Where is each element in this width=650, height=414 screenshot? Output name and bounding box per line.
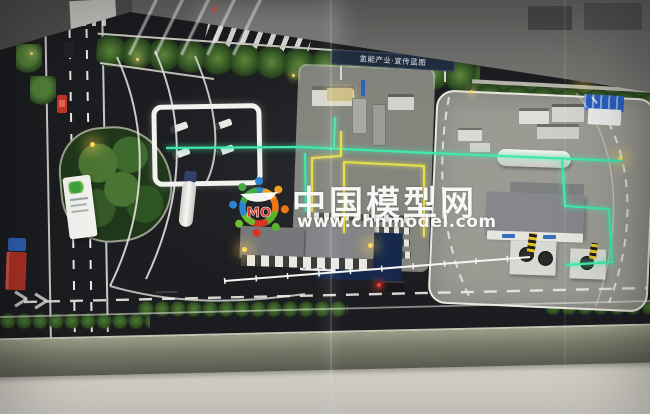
dark-car: [64, 42, 74, 58]
equipment-tower: [372, 104, 386, 146]
totem-text-line: [70, 197, 88, 201]
totem-text-line: [71, 209, 88, 213]
truck-cab: [8, 238, 26, 252]
blue-pipe-column: [361, 80, 365, 96]
banner-post: [444, 70, 446, 82]
hedge-row: [0, 312, 150, 336]
totem-text-line: [71, 203, 87, 207]
road-edge-line: [44, 8, 52, 338]
tree: [16, 44, 42, 74]
street-lamp: [242, 247, 247, 252]
equipment-cabinet: [470, 143, 490, 152]
totem-logo-icon: [68, 180, 87, 194]
street-lamp: [618, 156, 623, 161]
truck-trailer: [5, 252, 26, 291]
street-lamp: [90, 142, 95, 147]
tree: [30, 76, 56, 106]
equipment-cabinet: [388, 94, 414, 110]
equipment-cabinet: [458, 128, 482, 141]
street-lamp: [30, 52, 33, 55]
watermark-logo-figures: MO: [226, 166, 292, 242]
car-roof: [59, 100, 65, 107]
road-chevron: [34, 300, 47, 310]
equipment-cabinet: [519, 108, 549, 124]
door-sign: [502, 234, 515, 238]
model-photo: 氢能产业·宣传蓝图: [0, 0, 650, 414]
dark-car: [382, 281, 405, 292]
equipment-cabinet: [552, 104, 584, 122]
equipment-cabinet: [537, 124, 579, 139]
equipment-tower: [352, 98, 367, 134]
indicator-light: [212, 7, 216, 11]
red-car: [57, 95, 67, 113]
street-lamp: [136, 58, 139, 61]
cooling-fan: [538, 251, 553, 266]
blue-roof-building: [588, 108, 622, 126]
watermark-logo-text: MO: [247, 205, 272, 221]
taillight-glow: [377, 283, 381, 287]
room-shelf: [584, 3, 642, 30]
watermark-url: www.chnmodel.com: [297, 212, 537, 232]
street-lamp: [292, 74, 295, 77]
street-lamp: [470, 90, 473, 93]
storage-tank: [497, 149, 572, 169]
door-sign: [543, 235, 556, 239]
watermark-logo: MO: [226, 166, 292, 242]
dark-car: [156, 291, 178, 301]
road-chevron: [14, 298, 27, 308]
street-lamp: [368, 243, 373, 248]
